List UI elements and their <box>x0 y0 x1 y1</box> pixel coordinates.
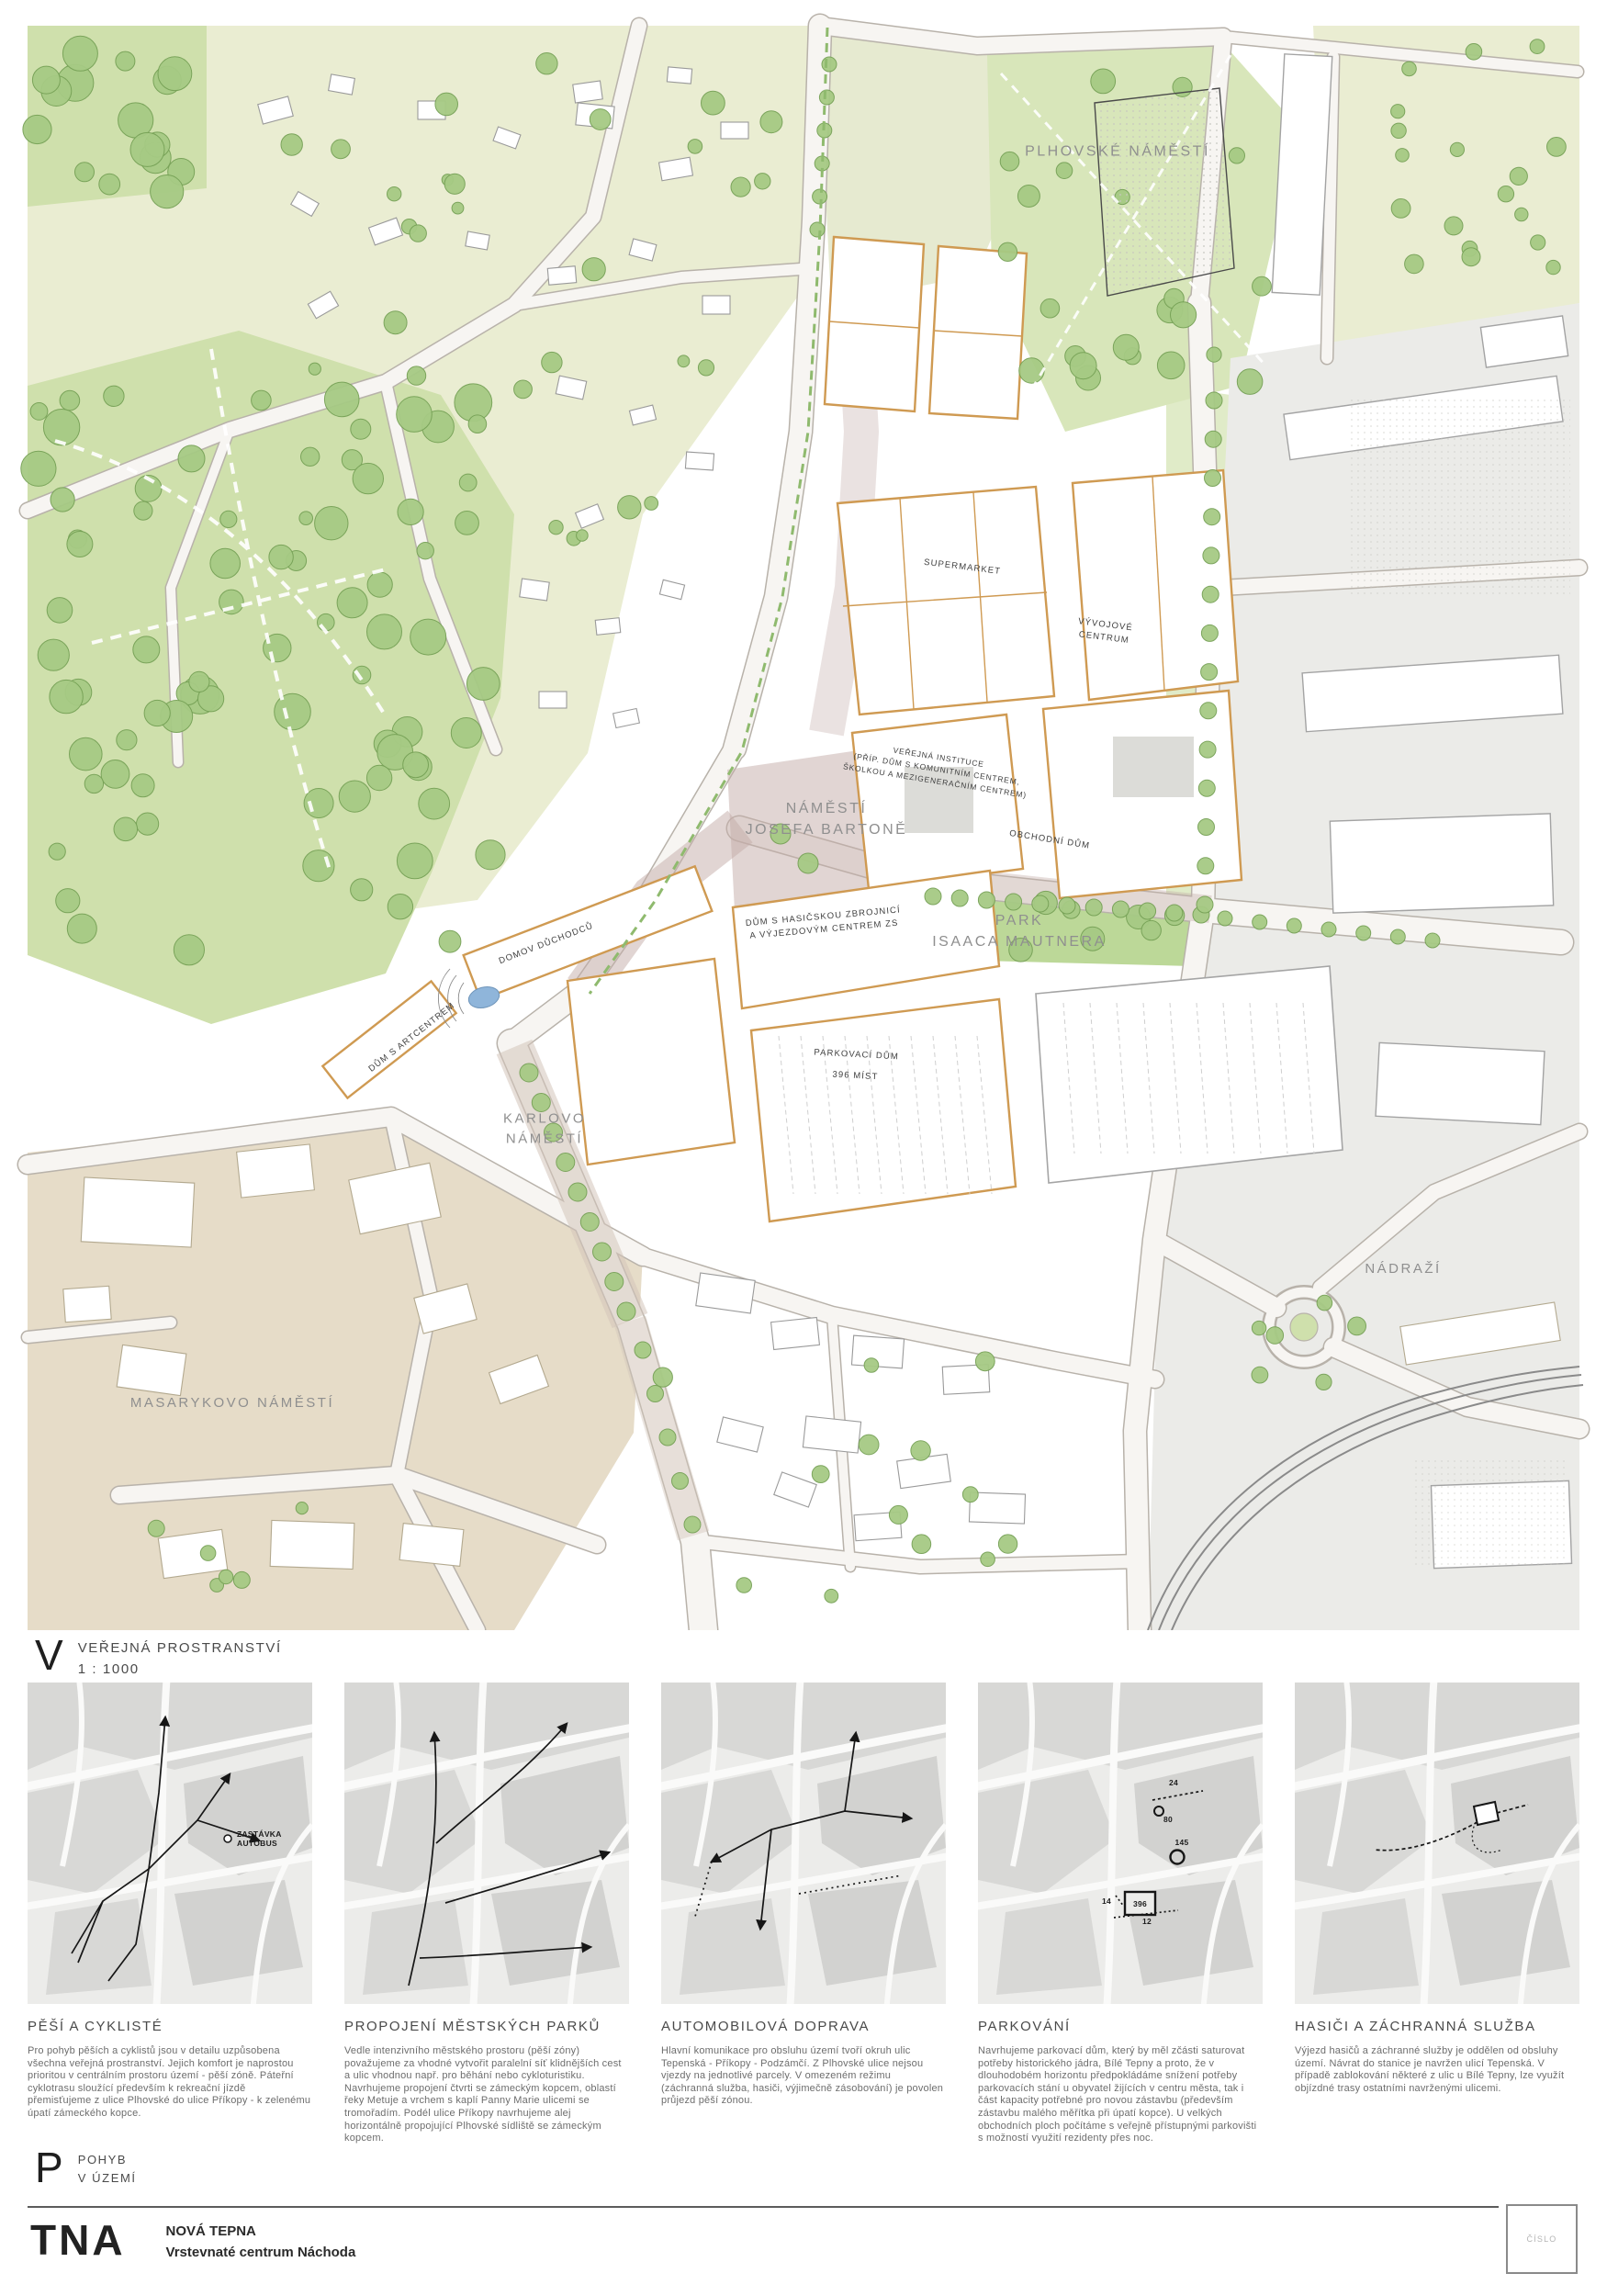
project-logo: TNA <box>30 2219 126 2261</box>
movement-title-line1: POHYB <box>78 2151 137 2169</box>
panel-text: Hlavní komunikace pro obsluhu území tvoř… <box>661 2045 946 2108</box>
map-scale: 1 : 1000 <box>78 1660 282 1681</box>
thumb-map-parks <box>344 1683 629 2004</box>
panel-fire-rescue: HASIČI A ZÁCHRANNÁ SLUŽBA Výjezd hasičů … <box>1295 1683 1579 2145</box>
sheet-number-box: ČÍSLO <box>1506 2204 1578 2274</box>
panel-title: PROPOJENÍ MĚSTSKÝCH PARKŮ <box>344 2019 629 2034</box>
panel-text: Pro pohyb pěších a cyklistů jsou v detai… <box>28 2045 312 2121</box>
parking-count-145: 145 <box>1174 1838 1188 1847</box>
thumb-map-pedestrians: ZASTÁVKA AUTOBUS <box>28 1683 312 2004</box>
panel-title: PARKOVÁNÍ <box>978 2019 1263 2034</box>
section-header-movement: P POHYB V ÚZEMÍ <box>35 2149 137 2187</box>
panel-text: Vedle intenzivního městského prostoru (p… <box>344 2045 629 2145</box>
presentation-board: PLHOVSKÉ NÁMĚSTÍ SUPERMARKET VÝVOJOVÉ CE… <box>0 0 1607 2296</box>
parking-count-80: 80 <box>1163 1815 1173 1824</box>
panel-pedestrians-cyclists: ZASTÁVKA AUTOBUS PĚŠÍ A CYKLISTÉ Pro poh… <box>28 1683 312 2145</box>
section-header-public-spaces: V VEŘEJNÁ PROSTRANSTVÍ 1 : 1000 <box>35 1637 282 1680</box>
master-plan-map: PLHOVSKÉ NÁMĚSTÍ SUPERMARKET VÝVOJOVÉ CE… <box>0 0 1607 1630</box>
parking-count-14: 14 <box>1102 1896 1111 1906</box>
thumb-map-traffic <box>661 1683 946 2004</box>
section-letter-v: V <box>35 1637 63 1674</box>
bus-stop-label-line2: AUTOBUS <box>237 1839 277 1848</box>
section-title-public-spaces: VEŘEJNÁ PROSTRANSTVÍ <box>78 1638 282 1660</box>
parking-count-396: 396 <box>1133 1899 1147 1908</box>
panel-parking: 24 80 145 396 14 12 PARKOVÁNÍ Navrhujeme… <box>978 1683 1263 2145</box>
master-plan-canvas <box>0 0 1607 1630</box>
section-letter-p: P <box>35 2149 63 2187</box>
bus-stop-icon <box>224 1835 231 1842</box>
bus-stop-label-line1: ZASTÁVKA <box>237 1829 282 1839</box>
panel-text: Výjezd hasičů a záchranné služby je oddě… <box>1295 2045 1579 2095</box>
parking-count-24: 24 <box>1169 1778 1178 1787</box>
roundabout-island <box>1290 1313 1318 1341</box>
panel-text: Navrhujeme parkovací dům, který by měl z… <box>978 2045 1263 2145</box>
footer-divider <box>28 2206 1499 2208</box>
project-name: NOVÁ TEPNA <box>166 2222 356 2243</box>
thumb-map-parking: 24 80 145 396 14 12 <box>978 1683 1263 2004</box>
panel-title: PĚŠÍ A CYKLISTÉ <box>28 2019 312 2034</box>
panel-park-connections: PROPOJENÍ MĚSTSKÝCH PARKŮ Vedle intenziv… <box>344 1683 629 2145</box>
footer: TNA NOVÁ TEPNA Vrstevnaté centrum Náchod… <box>30 2219 355 2263</box>
panel-title: HASIČI A ZÁCHRANNÁ SLUŽBA <box>1295 2019 1579 2034</box>
panel-car-traffic: AUTOMOBILOVÁ DOPRAVA Hlavní komunikace p… <box>661 1683 946 2145</box>
thumb-map-fire-rescue <box>1295 1683 1579 2004</box>
analysis-panels: ZASTÁVKA AUTOBUS PĚŠÍ A CYKLISTÉ Pro poh… <box>28 1683 1579 2145</box>
plhov-square-paving <box>1095 88 1234 296</box>
parking-count-12: 12 <box>1142 1917 1152 1926</box>
movement-title-line2: V ÚZEMÍ <box>78 2169 137 2188</box>
panel-title: AUTOMOBILOVÁ DOPRAVA <box>661 2019 946 2034</box>
project-subtitle: Vrstevnaté centrum Náchoda <box>166 2243 356 2264</box>
